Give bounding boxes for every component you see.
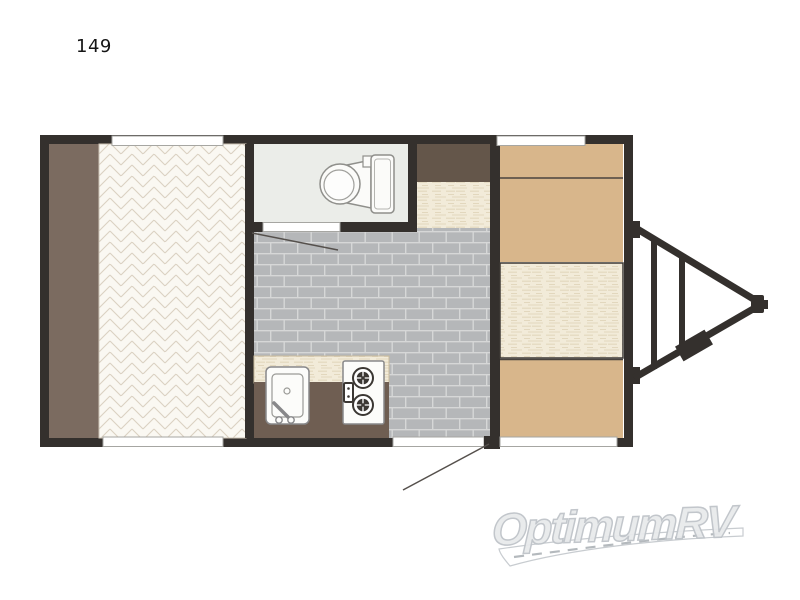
sink-knob-left [276, 417, 282, 423]
toilet-bowl-inner [324, 170, 354, 200]
bathroom-door-opening [263, 223, 340, 232]
wardrobe-cabinet [417, 144, 490, 182]
a-frame-tongue [626, 221, 768, 384]
bathroom-right-wall [408, 144, 417, 232]
window-rear-top [112, 136, 223, 146]
window-rear-bottom [103, 437, 223, 447]
stove-knob-2 [347, 395, 350, 398]
coupler-tip [762, 300, 768, 309]
front-cabinet-top [500, 144, 623, 262]
front-cabinet-bottom [500, 359, 623, 438]
stove-burner-bottom [353, 395, 373, 415]
entry-door-leader-line [403, 444, 489, 490]
bed-bath-divider-wall [245, 144, 254, 438]
front-bench-cushion [500, 263, 623, 358]
watermark-brand-text: OptimumRV [491, 494, 793, 557]
stove-burner-top [353, 368, 373, 388]
window-front-bottom [500, 437, 617, 447]
two-burner-stove [343, 361, 384, 424]
window-front-top [497, 136, 585, 146]
front-divider-wall [490, 144, 500, 438]
entry-door-post [484, 436, 500, 449]
kitchen-sink [266, 367, 309, 424]
sink-knob-right [288, 417, 294, 423]
rear-bed [99, 144, 246, 438]
stove-control-panel [344, 383, 353, 402]
side-cabinet-strip [49, 144, 99, 438]
counter-column [417, 182, 490, 228]
entry-door-opening [393, 437, 484, 447]
stove-knob-1 [347, 387, 350, 390]
